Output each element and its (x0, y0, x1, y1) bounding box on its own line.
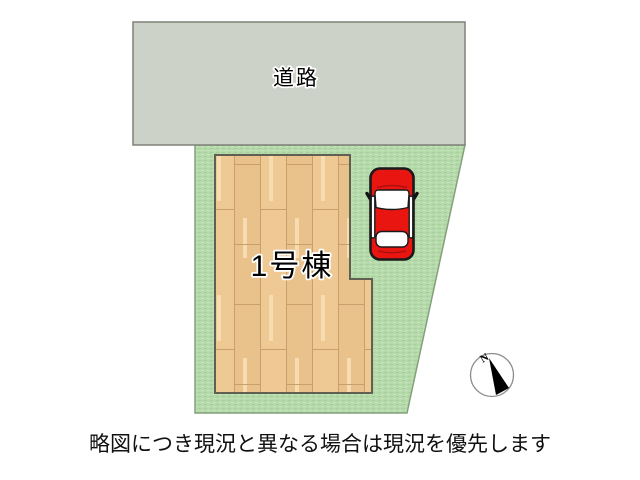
disclaimer-caption: 略図につき現況と異なる場合は現況を優先します (0, 431, 640, 459)
car-illustration (367, 169, 417, 260)
compass-ring (471, 354, 514, 397)
road-label: 道路 (273, 67, 319, 90)
car-left-window (371, 196, 375, 238)
car-rear-window (376, 232, 408, 248)
building-label: 1号棟 (251, 250, 334, 283)
site-plan: N 道路 1号棟 (0, 0, 640, 480)
compass-icon: N (471, 351, 514, 396)
car-right-window (409, 196, 413, 238)
car-windshield (375, 190, 409, 210)
